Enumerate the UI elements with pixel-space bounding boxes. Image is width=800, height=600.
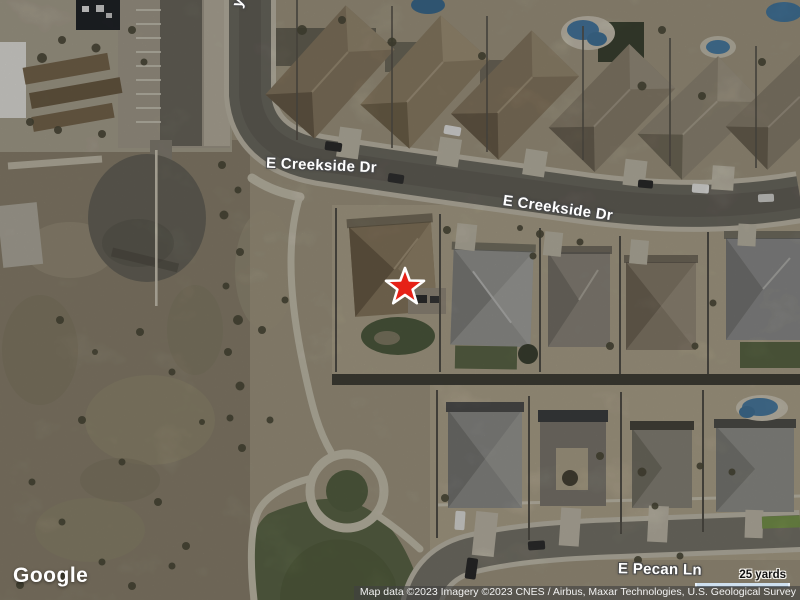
google-logo[interactable]: Google [13,564,88,588]
star-icon [383,265,427,309]
map-attribution: Map data ©2023 Imagery ©2023 CNES / Airb… [354,586,800,600]
google-maps-satellite-view: y E Creekside Dr E Creekside Dr E Pecan … [0,0,800,600]
property-marker[interactable] [383,265,427,309]
map-canvas[interactable]: y E Creekside Dr E Creekside Dr E Pecan … [0,0,800,600]
scale-label: 25 yards [695,569,790,581]
map-scale-control: 25 yards [695,569,790,587]
